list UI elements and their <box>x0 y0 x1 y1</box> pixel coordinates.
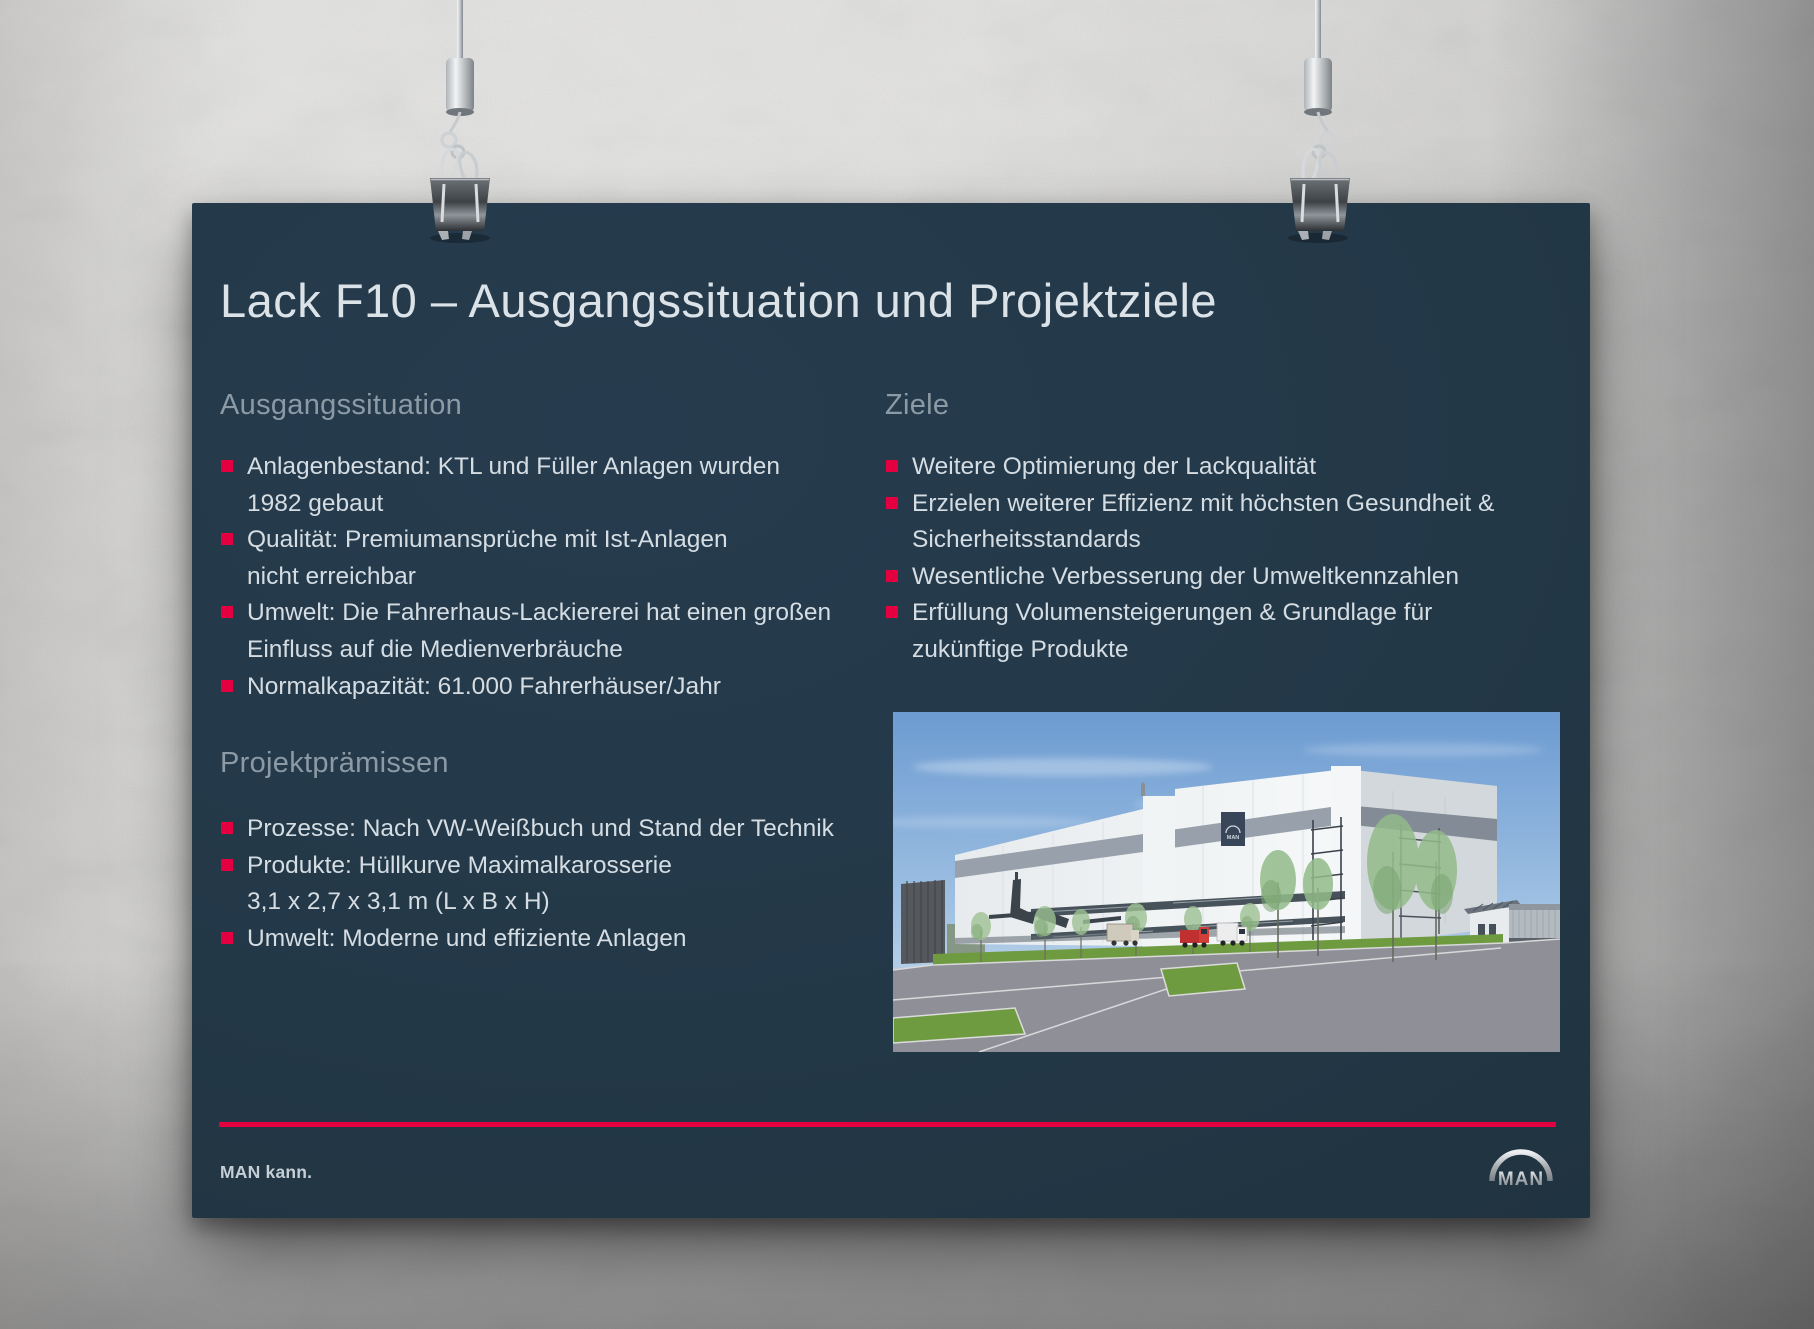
bullet-text: zukünftige Produkte <box>912 636 1129 663</box>
bullet-row: Erfüllung Volumensteigerungen & Grundlag… <box>885 595 1525 632</box>
bullet-row: Weitere Optimierung der Lackqualität <box>885 449 1525 486</box>
bullet-list: Weitere Optimierung der LackqualitätErzi… <box>885 449 1525 669</box>
bullet-marker <box>886 497 898 509</box>
bullet-text: Anlagenbestand: KTL und Füller Anlagen w… <box>247 453 780 480</box>
bullet-row: nicht erreichbar <box>220 559 860 596</box>
bullet-row: Einfluss auf die Medienverbräuche <box>220 632 860 669</box>
section-heading: Ziele <box>885 389 1525 422</box>
bullet-marker <box>221 859 233 871</box>
bullet-row: Prozesse: Nach VW-Weißbuch und Stand der… <box>220 811 860 848</box>
bullet-row: Normalkapazität: 61.000 Fahrerhäuser/Jah… <box>220 669 860 706</box>
bullet-list: Prozesse: Nach VW-Weißbuch und Stand der… <box>220 811 860 957</box>
bullet-row: Produkte: Hüllkurve Maximalkarosserie <box>220 848 860 885</box>
bullet-text: Erzielen weiterer Effizienz mit höchsten… <box>912 490 1494 517</box>
bullet-marker <box>886 570 898 582</box>
bullet-row: Anlagenbestand: KTL und Füller Anlagen w… <box>220 449 860 486</box>
section-heading: Ausgangssituation <box>220 389 860 422</box>
bullet-marker <box>221 932 233 944</box>
svg-text:MAN: MAN <box>1227 835 1240 841</box>
bullet-text: 1982 gebaut <box>247 490 383 517</box>
section-heading: Projektprämissen <box>220 747 860 780</box>
section-ausgangssituation: Ausgangssituation Anlagenbestand: KTL un… <box>220 389 860 705</box>
bullet-text: Qualität: Premiumansprüche mit Ist-Anlag… <box>247 526 728 553</box>
bullet-row: Umwelt: Moderne und effiziente Anlagen <box>220 921 860 958</box>
bullet-text: Einfluss auf die Medienverbräuche <box>247 636 623 663</box>
bullet-text: Produkte: Hüllkurve Maximalkarosserie <box>247 852 672 879</box>
bullet-text: Normalkapazität: 61.000 Fahrerhäuser/Jah… <box>247 673 721 700</box>
bullet-list: Anlagenbestand: KTL und Füller Anlagen w… <box>220 449 860 705</box>
bullet-row: Qualität: Premiumansprüche mit Ist-Anlag… <box>220 522 860 559</box>
presentation-slide-poster: Lack F10 – Ausgangssituation und Projekt… <box>192 203 1590 1218</box>
bullet-text: Sicherheitsstandards <box>912 526 1141 553</box>
binder-clip-hanger-left <box>400 0 520 250</box>
man-red-divider <box>219 1122 1556 1127</box>
bullet-row: Sicherheitsstandards <box>885 522 1525 559</box>
man-logo-text: MAN <box>1498 1169 1544 1188</box>
bullet-marker <box>221 680 233 692</box>
bullet-marker <box>221 822 233 834</box>
bullet-row: 3,1 x 2,7 x 3,1 m (L x B x H) <box>220 884 860 921</box>
slide-title: Lack F10 – Ausgangssituation und Projekt… <box>220 273 1217 328</box>
bullet-row: 1982 gebaut <box>220 486 860 523</box>
brand-claim: MAN kann. <box>220 1162 312 1183</box>
bullet-row: Wesentliche Verbesserung der Umweltkennz… <box>885 559 1525 596</box>
bullet-row: zukünftige Produkte <box>885 632 1525 669</box>
man-logo: MAN <box>1484 1138 1558 1188</box>
bullet-marker <box>221 533 233 545</box>
bullet-row: Erzielen weiterer Effizienz mit höchsten… <box>885 486 1525 523</box>
section-projektpraemissen: Projektprämissen Prozesse: Nach VW-Weißb… <box>220 747 860 957</box>
bullet-marker <box>886 460 898 472</box>
bullet-text: Weitere Optimierung der Lackqualität <box>912 453 1316 480</box>
bullet-text: Erfüllung Volumensteigerungen & Grundlag… <box>912 599 1432 626</box>
bullet-marker <box>886 606 898 618</box>
bullet-text: 3,1 x 2,7 x 3,1 m (L x B x H) <box>247 888 550 915</box>
section-ziele: Ziele Weitere Optimierung der Lackqualit… <box>885 389 1525 669</box>
binder-clip-hanger-right <box>1258 0 1378 250</box>
bullet-text: Umwelt: Moderne und effiziente Anlagen <box>247 925 686 952</box>
bullet-row: Umwelt: Die Fahrerhaus-Lackiererei hat e… <box>220 595 860 632</box>
bullet-text: Wesentliche Verbesserung der Umweltkennz… <box>912 563 1459 590</box>
bullet-text: nicht erreichbar <box>247 563 416 590</box>
bullet-marker <box>221 606 233 618</box>
building-man-sign: MAN <box>1221 812 1245 846</box>
facility-rendering-image: MAN <box>893 712 1560 1052</box>
photographed-poster-scene: Lack F10 – Ausgangssituation und Projekt… <box>0 0 1814 1329</box>
bullet-marker <box>221 460 233 472</box>
bullet-text: Prozesse: Nach VW-Weißbuch und Stand der… <box>247 815 834 842</box>
bullet-text: Umwelt: Die Fahrerhaus-Lackiererei hat e… <box>247 599 831 626</box>
